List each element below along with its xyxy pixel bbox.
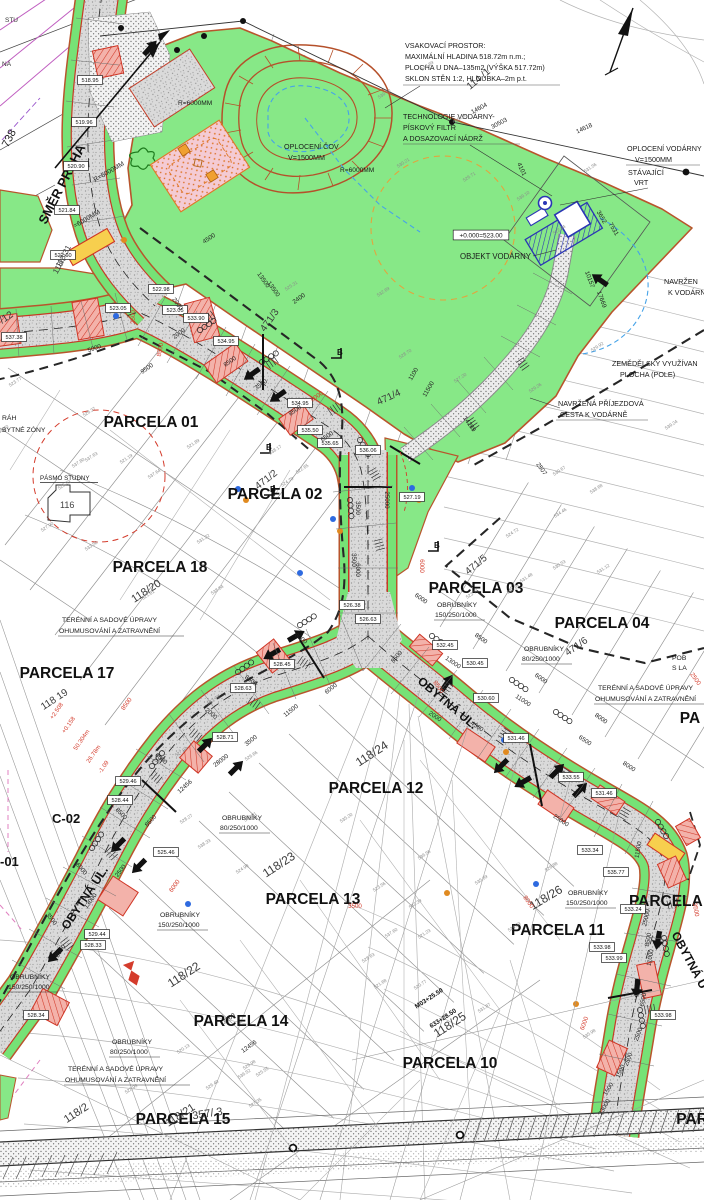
svg-text:PA: PA bbox=[680, 710, 700, 727]
svg-text:3500: 3500 bbox=[348, 903, 362, 910]
svg-text:STÁVAJÍCÍ: STÁVAJÍCÍ bbox=[628, 168, 664, 177]
svg-text:-01: -01 bbox=[0, 854, 19, 869]
svg-text:OBJEKT VODÁRNY: OBJEKT VODÁRNY bbox=[460, 252, 532, 261]
svg-text:S LA: S LA bbox=[672, 665, 687, 672]
svg-text:534.95: 534.95 bbox=[217, 339, 234, 345]
svg-text:NAVRŽENÁ PŘÍJEZDOVÁ: NAVRŽENÁ PŘÍJEZDOVÁ bbox=[558, 399, 644, 408]
svg-text:PARCELA 12: PARCELA 12 bbox=[329, 780, 424, 797]
svg-text:PARCELA 14: PARCELA 14 bbox=[194, 1013, 289, 1030]
svg-text:K VODÁRN: K VODÁRN bbox=[668, 288, 704, 297]
svg-text:533.90: 533.90 bbox=[187, 316, 204, 322]
svg-text:OPLOCENÍ VODÁRNY: OPLOCENÍ VODÁRNY bbox=[627, 144, 702, 153]
svg-text:518.95: 518.95 bbox=[81, 78, 98, 84]
svg-text:521.84: 521.84 bbox=[58, 208, 75, 214]
svg-text:519.96: 519.96 bbox=[75, 120, 92, 126]
svg-text:535.50: 535.50 bbox=[301, 428, 318, 434]
svg-text:528.45: 528.45 bbox=[273, 662, 290, 668]
svg-text:+0.000=523.00: +0.000=523.00 bbox=[459, 232, 502, 239]
svg-text:529.46: 529.46 bbox=[119, 779, 136, 785]
svg-text:522.98: 522.98 bbox=[152, 287, 169, 293]
svg-text:OHUMUSOVÁNÍ A ZATRAVNĚNÍ: OHUMUSOVÁNÍ A ZATRAVNĚNÍ bbox=[65, 1075, 166, 1084]
svg-text:R=6000MM: R=6000MM bbox=[178, 100, 212, 107]
svg-text:OHUMUSOVÁNÍ A ZATRAVNĚNÍ: OHUMUSOVÁNÍ A ZATRAVNĚNÍ bbox=[59, 626, 160, 635]
svg-text:OBRUBNÍKY: OBRUBNÍKY bbox=[437, 600, 478, 609]
svg-text:POB: POB bbox=[672, 655, 687, 662]
svg-text:PARCELA 10: PARCELA 10 bbox=[403, 1055, 498, 1072]
svg-text:CESTA K VODÁRNĚ: CESTA K VODÁRNĚ bbox=[560, 410, 628, 419]
svg-text:MAXIMÁLNÍ HLADINA 518.72m n.m.: MAXIMÁLNÍ HLADINA 518.72m n.m.; bbox=[405, 52, 525, 61]
svg-text:ZEMĚDĚLSKY VYUŽÍVAN: ZEMĚDĚLSKY VYUŽÍVAN bbox=[612, 359, 698, 368]
svg-text:533.34: 533.34 bbox=[581, 848, 598, 854]
svg-text:A DOSAZOVACÍ NÁDRŽ: A DOSAZOVACÍ NÁDRŽ bbox=[403, 134, 483, 143]
svg-text:STU: STU bbox=[5, 17, 18, 24]
svg-text:529.44: 529.44 bbox=[88, 932, 105, 938]
svg-text:PAR: PAR bbox=[676, 1111, 704, 1128]
svg-text:OBRUBNÍKY: OBRUBNÍKY bbox=[568, 888, 609, 897]
svg-text:531.46: 531.46 bbox=[595, 791, 612, 797]
svg-text:150/250/1000: 150/250/1000 bbox=[566, 900, 608, 907]
svg-text:528.63: 528.63 bbox=[234, 686, 251, 692]
svg-text:525.46: 525.46 bbox=[157, 850, 174, 856]
svg-text:C-02: C-02 bbox=[52, 811, 80, 826]
svg-text:PARCELA 11: PARCELA 11 bbox=[511, 922, 605, 939]
svg-text:TERÉNNÍ A SADOVÉ ÚPRAVY: TERÉNNÍ A SADOVÉ ÚPRAVY bbox=[598, 683, 694, 692]
svg-text:526.38: 526.38 bbox=[343, 603, 360, 609]
svg-text:OBRUBNÍKY: OBRUBNÍKY bbox=[524, 644, 565, 653]
svg-text:526.63: 526.63 bbox=[359, 617, 376, 623]
svg-text:B: B bbox=[434, 541, 440, 550]
svg-text:536.06: 536.06 bbox=[359, 448, 376, 454]
svg-text:NÁ: NÁ bbox=[2, 59, 12, 68]
svg-text:531.46: 531.46 bbox=[507, 736, 524, 742]
svg-text:150/250/1000: 150/250/1000 bbox=[8, 984, 50, 991]
svg-text:TECHNOLOGIE VODÁRNY-: TECHNOLOGIE VODÁRNY- bbox=[403, 112, 495, 121]
svg-text:528.33: 528.33 bbox=[84, 943, 101, 949]
svg-text:532.45: 532.45 bbox=[436, 643, 453, 649]
svg-text:530.45: 530.45 bbox=[466, 661, 483, 667]
svg-text:116: 116 bbox=[60, 500, 74, 510]
svg-text:PLOCHA (POLE): PLOCHA (POLE) bbox=[620, 370, 675, 379]
svg-text:535.77: 535.77 bbox=[607, 870, 624, 876]
svg-text:537.38: 537.38 bbox=[5, 335, 22, 341]
svg-text:527.19: 527.19 bbox=[403, 495, 420, 501]
svg-text:TERÉNNÍ A SADOVÉ ÚPRAVY: TERÉNNÍ A SADOVÉ ÚPRAVY bbox=[62, 615, 158, 624]
svg-text:OBRUBNÍKY: OBRUBNÍKY bbox=[160, 910, 201, 919]
svg-text:150/250/1000: 150/250/1000 bbox=[158, 922, 200, 929]
svg-text:VRT: VRT bbox=[634, 178, 649, 187]
svg-text:B: B bbox=[270, 485, 276, 494]
svg-text:6000: 6000 bbox=[354, 563, 361, 577]
svg-text:2500: 2500 bbox=[130, 310, 137, 324]
svg-text:V=1500MM: V=1500MM bbox=[288, 153, 325, 162]
svg-text:533.99: 533.99 bbox=[605, 956, 622, 962]
svg-text:RÁH: RÁH bbox=[2, 413, 16, 422]
svg-text:V=1500MM: V=1500MM bbox=[635, 155, 672, 164]
svg-text:PARCELA 01: PARCELA 01 bbox=[104, 414, 199, 431]
svg-text:3500: 3500 bbox=[354, 501, 361, 515]
svg-text:PARCELA 04: PARCELA 04 bbox=[555, 615, 650, 632]
svg-text:533.98: 533.98 bbox=[654, 1013, 671, 1019]
svg-text:OBRUBNÍKY: OBRUBNÍKY bbox=[10, 972, 51, 981]
svg-text:TERÉNNÍ A SADOVÉ ÚPRAVY: TERÉNNÍ A SADOVÉ ÚPRAVY bbox=[68, 1064, 164, 1073]
svg-text:VSAKOVACÍ PROSTOR:: VSAKOVACÍ PROSTOR: bbox=[405, 41, 485, 50]
svg-text:NAVRŽEN: NAVRŽEN bbox=[664, 277, 698, 286]
svg-text:533.24: 533.24 bbox=[624, 907, 641, 913]
svg-text:SKLON STĚN 1:2, HLOUBKA–2m p.t: SKLON STĚN 1:2, HLOUBKA–2m p.t. bbox=[405, 74, 527, 83]
svg-text:150/250/1000: 150/250/1000 bbox=[435, 612, 477, 619]
svg-text:80/250/1000: 80/250/1000 bbox=[220, 825, 258, 832]
svg-text:PÍSKOVÝ FILTR: PÍSKOVÝ FILTR bbox=[403, 123, 456, 132]
svg-text:OBRUBNÍKY: OBRUBNÍKY bbox=[112, 1037, 153, 1046]
svg-text:PARCELA 18: PARCELA 18 bbox=[113, 559, 208, 576]
svg-text:PARCELA 13: PARCELA 13 bbox=[266, 891, 361, 908]
svg-text:528.44: 528.44 bbox=[111, 798, 128, 804]
svg-text:R=6000MM: R=6000MM bbox=[340, 167, 374, 174]
svg-text:528.71: 528.71 bbox=[216, 735, 233, 741]
svg-text:OHUMUSOVÁNÍ A ZATRAVNĚNÍ: OHUMUSOVÁNÍ A ZATRAVNĚNÍ bbox=[595, 694, 696, 703]
svg-text:BYTNÉ ZÓNY: BYTNÉ ZÓNY bbox=[2, 425, 46, 434]
svg-text:OPLOCENÍ ČOV: OPLOCENÍ ČOV bbox=[284, 142, 339, 151]
svg-text:80/250/1000: 80/250/1000 bbox=[110, 1049, 148, 1056]
svg-text:533.55: 533.55 bbox=[562, 775, 579, 781]
svg-text:520.90: 520.90 bbox=[67, 164, 84, 170]
svg-text:80/250/1000: 80/250/1000 bbox=[522, 656, 560, 663]
svg-text:523.05: 523.05 bbox=[109, 306, 126, 312]
svg-text:528.34: 528.34 bbox=[27, 1013, 44, 1019]
svg-text:B: B bbox=[337, 348, 343, 357]
svg-text:530.60: 530.60 bbox=[477, 696, 494, 702]
svg-text:25000: 25000 bbox=[383, 491, 390, 509]
svg-text:PARCELA 17: PARCELA 17 bbox=[20, 665, 115, 682]
svg-text:533.98: 533.98 bbox=[593, 945, 610, 951]
svg-text:6000: 6000 bbox=[418, 559, 425, 573]
